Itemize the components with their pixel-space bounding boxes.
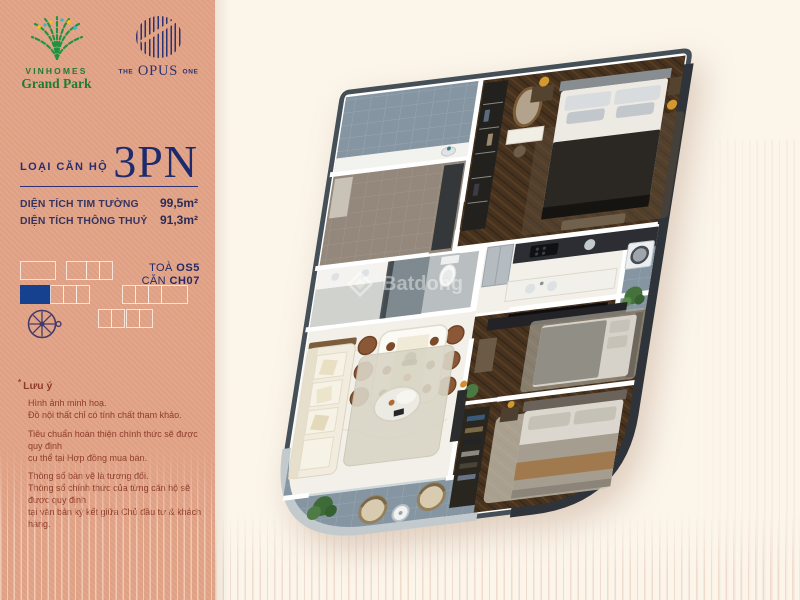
logo-row: VINHOMES Grand Park THE OPUS ONE	[0, 14, 215, 100]
keyplan-row-3	[98, 309, 200, 328]
area-row-gross: DIỆN TÍCH TIM TƯỜNG 99,5m²	[20, 196, 198, 210]
fluted-stripes-panel	[0, 445, 215, 600]
area-net-label: DIỆN TÍCH THÔNG THUỶ	[20, 216, 148, 227]
opus-one-wordmark: THE OPUS ONE	[116, 62, 202, 80]
vinhomes-tree-icon	[25, 14, 89, 60]
opus-one-logo: THE OPUS ONE	[116, 14, 202, 100]
opus-one-icon	[136, 16, 182, 58]
area-net-value: 91,3m²	[160, 213, 198, 227]
keyplan-cell	[89, 285, 123, 304]
unit-type-row: LOẠI CĂN HỘ 3PN	[20, 130, 198, 182]
keyplan-cell	[66, 261, 87, 280]
keyplan-cell	[99, 261, 113, 280]
divider-line	[20, 186, 198, 187]
vinhomes-grand-park-wordmark: Grand Park	[14, 76, 100, 92]
keyplan-cell	[20, 261, 56, 280]
unit-type-label: LOẠI CĂN HỘ	[20, 161, 108, 182]
keyplan-cell	[63, 285, 77, 304]
area-specs: DIỆN TÍCH TIM TƯỜNG 99,5m² DIỆN TÍCH THÔ…	[20, 193, 198, 227]
notes-title: *Lưu ý	[18, 378, 202, 392]
keyplan-cell	[50, 285, 64, 304]
keyplan-cell	[86, 261, 100, 280]
keyplan-cell	[20, 285, 51, 304]
brand-sidebar: VINHOMES Grand Park THE OPUS ONE LOẠI CĂ…	[0, 0, 215, 600]
keyplan-cell	[111, 309, 125, 328]
area-row-net: DIỆN TÍCH THÔNG THUỶ 91,3m²	[20, 213, 198, 227]
tower-unit-text: TOÀ OS5 CĂN CH07	[142, 262, 200, 288]
keyplan-cell	[122, 285, 136, 304]
area-gross-label: DIỆN TÍCH TIM TƯỜNG	[20, 199, 139, 210]
keyplan-cell	[98, 309, 112, 328]
area-gross-value: 99,5m²	[160, 196, 198, 210]
keyplan-cell	[139, 309, 153, 328]
keyplan-cell	[126, 309, 140, 328]
vinhomes-logo: VINHOMES Grand Park	[14, 14, 100, 100]
vinhomes-wordmark: VINHOMES	[14, 66, 100, 76]
compass-icon	[24, 305, 64, 343]
keyplan-cell	[76, 285, 90, 304]
tower-line: TOÀ OS5	[142, 262, 200, 275]
unit-type-value: 3PN	[113, 142, 198, 182]
unit-line: CĂN CH07	[142, 275, 200, 288]
note-paragraph-1: Hình ảnh minh hoạ. Đồ nội thất chỉ có tí…	[28, 398, 202, 422]
